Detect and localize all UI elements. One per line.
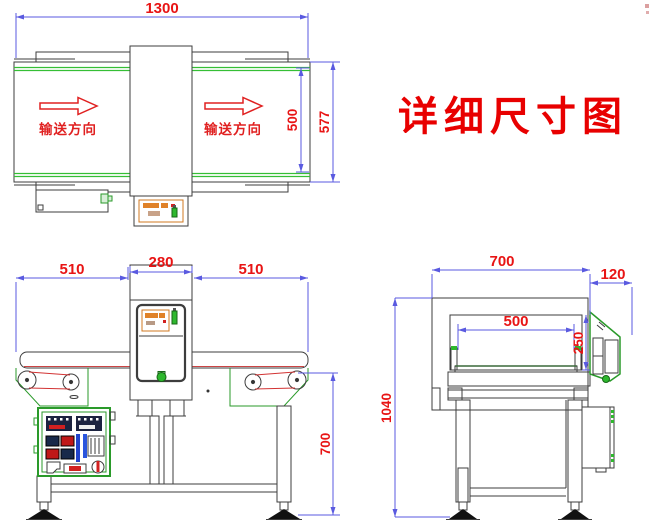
detector-head-front — [130, 265, 192, 416]
corner-artifact — [645, 4, 649, 8]
rollers-left — [18, 371, 79, 390]
motor-box-side — [582, 407, 614, 472]
dim-577: 577 — [317, 111, 332, 134]
dim-510-left: 510 — [59, 261, 84, 278]
flow-label-left: 输送方向 — [39, 121, 97, 137]
display-mount — [590, 312, 620, 383]
dim-700-side: 700 — [489, 253, 514, 270]
dim-1300: 1300 — [145, 0, 178, 17]
dim-510-right: 510 — [238, 261, 263, 278]
top-view-drawing: 输送方向 输送方向 1300 500 577 — [0, 0, 350, 240]
side-view-drawing: 700 120 1040 500 250 — [350, 240, 650, 530]
mount-knob — [603, 376, 610, 383]
front-view-machine — [16, 265, 308, 520]
dim-120: 120 — [600, 266, 625, 283]
control-cabinet — [34, 408, 115, 476]
detector-head-top — [130, 46, 192, 196]
page-title: 详细尺寸图 — [398, 84, 638, 138]
dim-700-front: 700 — [318, 433, 333, 456]
control-panel — [134, 196, 188, 226]
dimension-drawing-page: 输送方向 输送方向 1300 500 577 — [0, 0, 650, 530]
feet-side — [446, 502, 592, 520]
dim-500-tunnel: 500 — [503, 313, 528, 330]
dim-1040: 1040 — [379, 393, 394, 423]
flow-label-right: 输送方向 — [204, 121, 262, 137]
front-view-drawing: 510 280 510 700 — [0, 240, 350, 530]
dim-500-belt: 500 — [285, 109, 300, 132]
rollers-right — [245, 371, 306, 390]
corner-artifact — [646, 11, 649, 14]
dim-280: 280 — [148, 254, 173, 271]
motor-box — [36, 190, 112, 212]
dim-250: 250 — [571, 332, 586, 355]
side-view-machine — [432, 298, 620, 520]
feet — [26, 502, 302, 520]
tunnel-knob — [157, 373, 166, 382]
